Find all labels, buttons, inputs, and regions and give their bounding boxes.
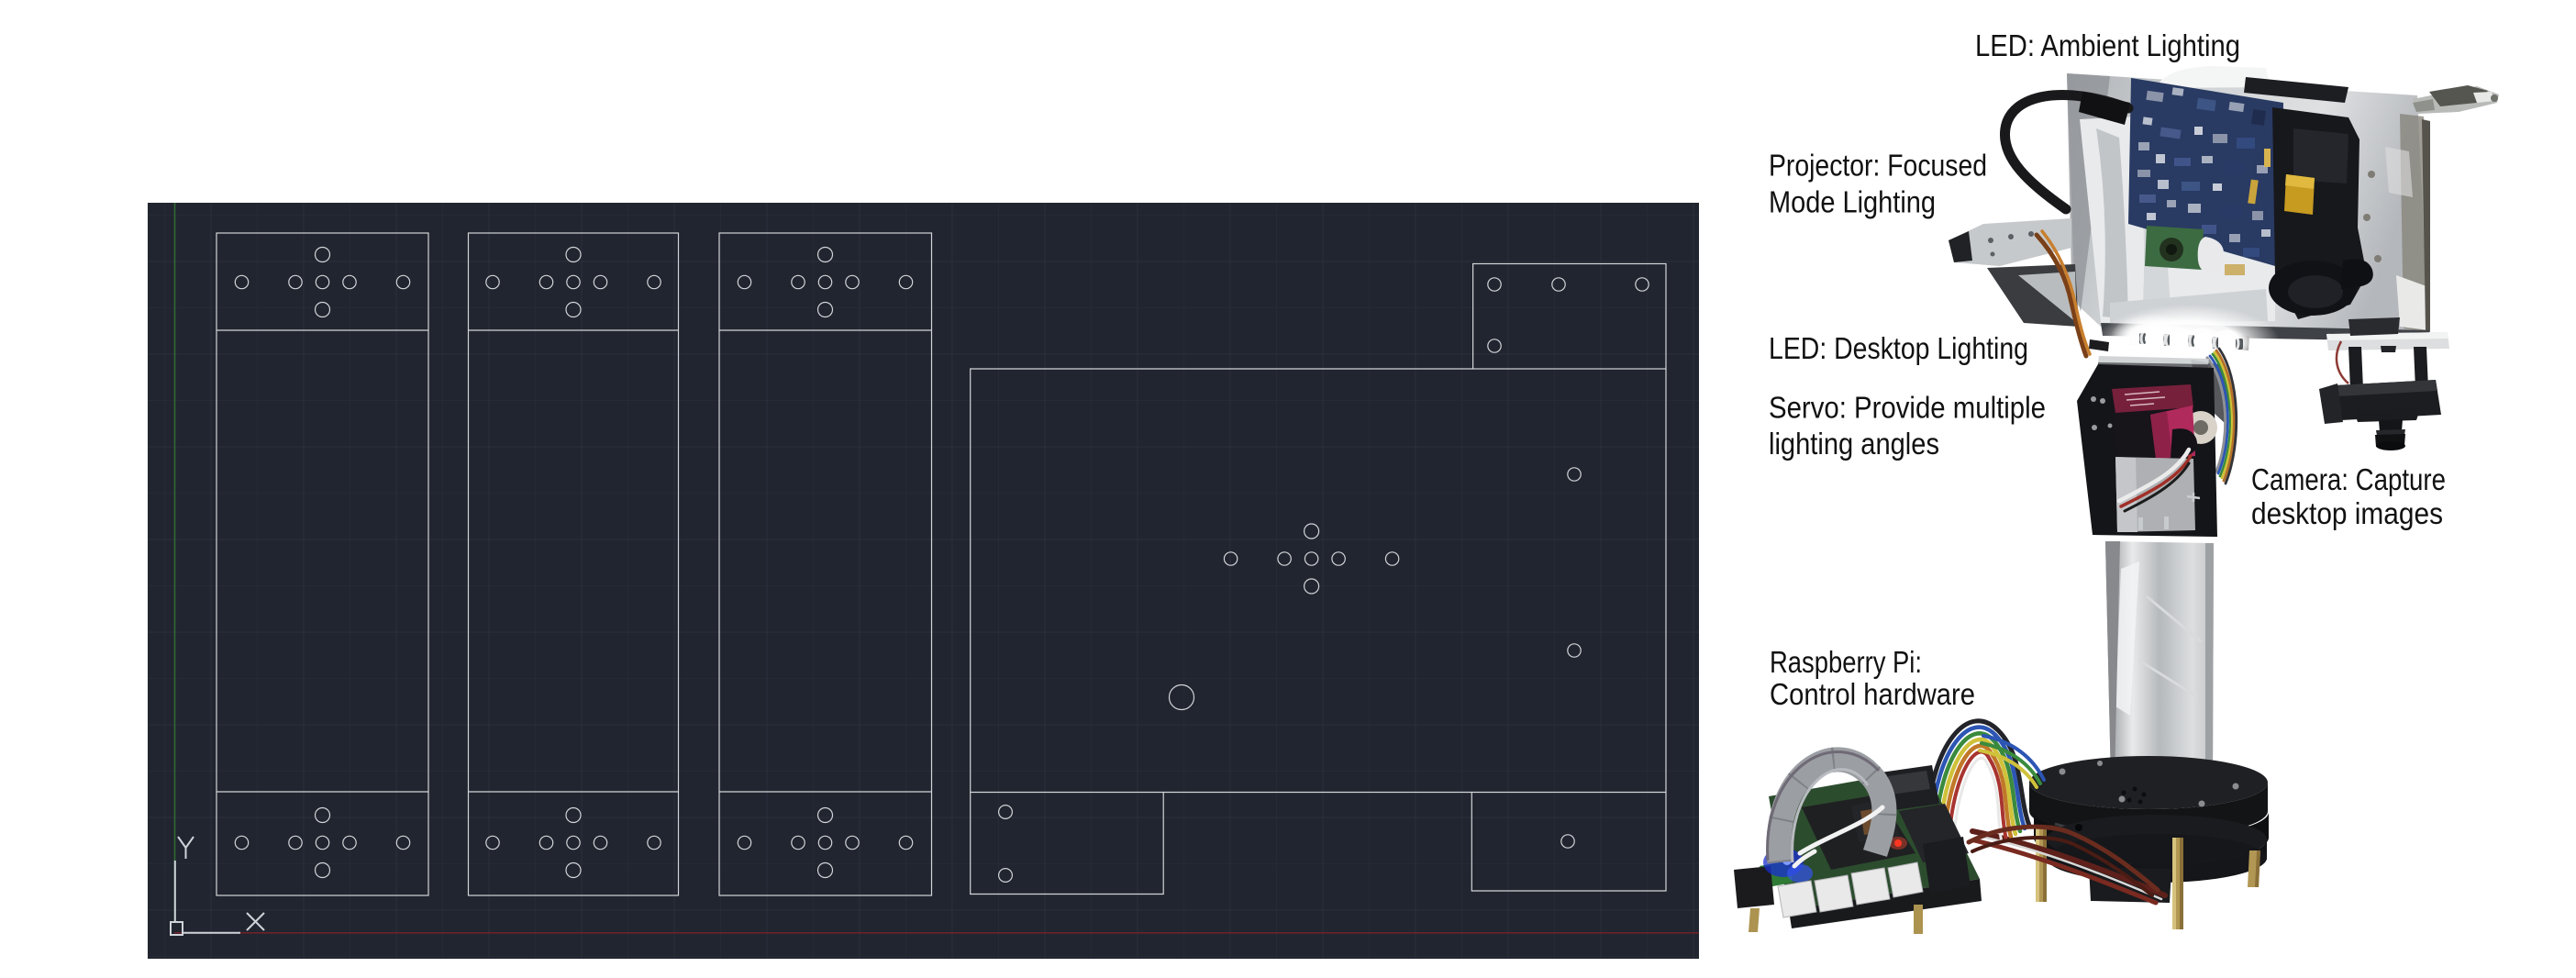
svg-text:lighting angles: lighting angles — [1769, 427, 1939, 461]
svg-text:Camera: Capture: Camera: Capture — [2251, 462, 2446, 496]
svg-text:desktop images: desktop images — [2251, 496, 2443, 530]
svg-text:Projector: Focused: Projector: Focused — [1769, 149, 1987, 183]
svg-text:LED: Desktop Lighting: LED: Desktop Lighting — [1769, 331, 2028, 365]
svg-text:Servo: Provide multiple: Servo: Provide multiple — [1769, 391, 2046, 425]
svg-text:Mode Lighting: Mode Lighting — [1769, 185, 1936, 219]
svg-text:Control hardware: Control hardware — [1770, 677, 1975, 711]
svg-text:Raspberry Pi:: Raspberry Pi: — [1770, 645, 1922, 679]
svg-text:LED: Ambient Lighting: LED: Ambient Lighting — [1975, 28, 2240, 62]
